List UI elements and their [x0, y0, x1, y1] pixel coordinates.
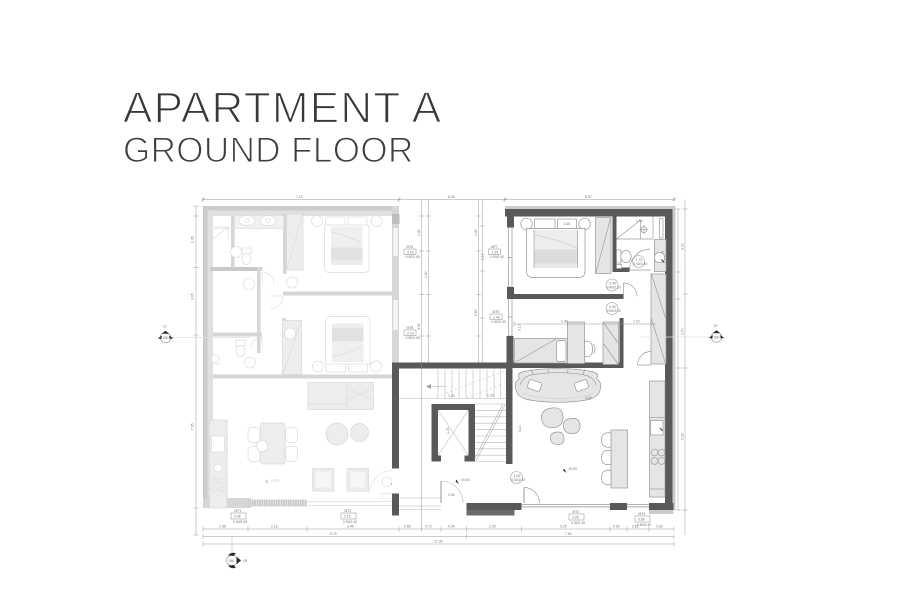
svg-text:1.40: 1.40	[561, 320, 568, 324]
svg-text:0.00/2.20: 0.00/2.20	[511, 478, 525, 482]
svg-text:1.20: 1.20	[487, 394, 494, 398]
svg-text:3.05: 3.05	[191, 293, 195, 300]
svg-text:07: 07	[714, 324, 718, 328]
svg-text:2.10: 2.10	[407, 251, 414, 255]
svg-text:1.66: 1.66	[219, 525, 226, 529]
svg-text:1.20: 1.20	[446, 427, 450, 434]
svg-text:MT7: MT7	[491, 245, 498, 249]
svg-text:2.60: 2.60	[474, 309, 478, 316]
svg-text:7.10: 7.10	[296, 195, 303, 199]
svg-text:3.10: 3.10	[518, 324, 522, 331]
svg-text:±0.00: ±0.00	[271, 479, 279, 483]
svg-text:0.40/2.30: 0.40/2.30	[633, 262, 647, 266]
svg-text:3.20: 3.20	[681, 243, 685, 250]
svg-text:5.25: 5.25	[681, 433, 685, 440]
svg-text:0.63: 0.63	[613, 525, 620, 529]
svg-text:0.90/2.40: 0.90/2.40	[406, 255, 420, 259]
svg-text:0.40/2.40: 0.40/2.40	[492, 320, 506, 324]
svg-text:7.60: 7.60	[565, 532, 572, 536]
svg-text:GROUND FLOOR: GROUND FLOOR	[123, 131, 414, 170]
svg-text:4.50: 4.50	[417, 323, 421, 330]
svg-text:0.94: 0.94	[448, 525, 455, 529]
svg-text:060: 060	[229, 559, 235, 563]
svg-text:3.40: 3.40	[347, 525, 354, 529]
svg-text:3.26: 3.26	[560, 525, 567, 529]
svg-text:7.65: 7.65	[191, 423, 195, 430]
svg-text:1.40: 1.40	[493, 316, 500, 320]
svg-text:±0.00: ±0.00	[569, 467, 578, 471]
svg-text:12: 12	[163, 325, 167, 329]
svg-text:1.20: 1.20	[448, 394, 455, 398]
svg-text:1.40: 1.40	[417, 229, 421, 236]
svg-text:MT2: MT2	[573, 510, 580, 514]
svg-text:2.70: 2.70	[681, 328, 685, 335]
svg-text:6.40: 6.40	[448, 195, 455, 199]
svg-text:2.10: 2.10	[481, 253, 485, 260]
svg-text:0.90/2.40: 0.90/2.40	[571, 521, 585, 525]
svg-text:MT2: MT2	[345, 509, 352, 513]
svg-text:2.46: 2.46	[234, 515, 241, 519]
svg-text:060: 060	[714, 336, 720, 340]
svg-text:0.90/2.20: 0.90/2.20	[607, 309, 621, 313]
svg-text:2.10: 2.10	[344, 515, 351, 519]
svg-text:MT4: MT4	[639, 512, 646, 516]
svg-text:060: 060	[163, 336, 169, 340]
svg-text:0.83: 0.83	[404, 525, 411, 529]
svg-text:2.35: 2.35	[191, 236, 195, 243]
svg-text:3.26: 3.26	[572, 516, 579, 520]
svg-text:1.40: 1.40	[474, 229, 478, 236]
svg-text:0.90/2.40: 0.90/2.40	[490, 255, 504, 259]
svg-text:MT8: MT8	[407, 326, 414, 330]
svg-text:0.90/2.40: 0.90/2.40	[343, 520, 357, 524]
svg-text:1.60: 1.60	[424, 271, 428, 278]
svg-text:3.00: 3.00	[585, 396, 592, 400]
svg-text:1.60: 1.60	[564, 222, 571, 226]
svg-text:0.90/2.40: 0.90/2.40	[406, 336, 420, 340]
svg-text:1.00: 1.00	[448, 493, 455, 497]
svg-text:9.70: 9.70	[330, 532, 337, 536]
svg-text:0.92: 0.92	[656, 525, 663, 529]
svg-text:MT6: MT6	[407, 245, 414, 249]
svg-text:05: 05	[244, 559, 248, 563]
svg-text:MT1: MT1	[235, 509, 242, 513]
svg-text:0.72: 0.72	[425, 525, 432, 529]
svg-text:2.10: 2.10	[407, 332, 414, 336]
svg-text:0.80: 0.80	[638, 518, 645, 522]
svg-text:4.10: 4.10	[518, 425, 522, 432]
svg-text:2.03: 2.03	[489, 525, 496, 529]
svg-text:0.40/2.20: 0.40/2.20	[607, 285, 621, 289]
svg-text:1.10: 1.10	[633, 320, 640, 324]
svg-text:MT5: MT5	[493, 310, 500, 314]
svg-text:APARTMENT A: APARTMENT A	[123, 84, 442, 133]
svg-text:0.80/2.40: 0.80/2.40	[637, 523, 651, 527]
svg-text:17.30: 17.30	[434, 540, 443, 544]
svg-text:1.90: 1.90	[636, 219, 643, 223]
svg-text:2.20: 2.20	[492, 251, 499, 255]
svg-text:8.87: 8.87	[585, 195, 592, 199]
svg-text:±0.00: ±0.00	[461, 478, 470, 482]
svg-text:2.16: 2.16	[271, 525, 278, 529]
svg-text:0.90/2.40: 0.90/2.40	[233, 520, 247, 524]
